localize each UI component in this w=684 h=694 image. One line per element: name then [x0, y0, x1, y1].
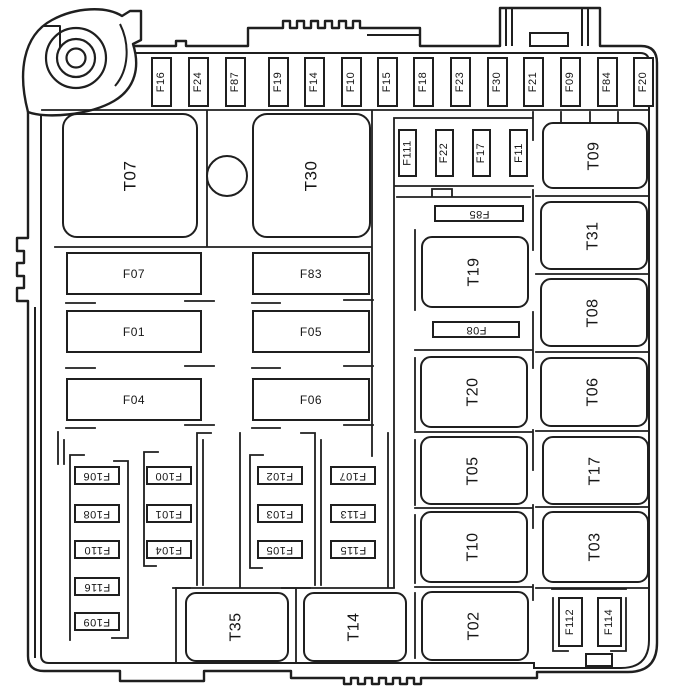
mounting-bracket [23, 9, 141, 115]
fuse-F113: F113 [330, 504, 376, 523]
fuse-F19: F19 [268, 57, 289, 107]
fuse-F83: F83 [252, 252, 370, 295]
fuse-F102: F102 [257, 466, 303, 485]
top-connector-latch [530, 33, 568, 46]
relay-label: T19 [466, 257, 484, 286]
fuse-F16: F16 [151, 57, 172, 107]
fuse-F20: F20 [633, 57, 654, 107]
fuse-F87: F87 [225, 57, 246, 107]
fuse-label: F112 [565, 609, 577, 635]
fuse-label: F10 [346, 72, 358, 92]
fuse-label: F111 [402, 140, 414, 165]
fuse-F108: F108 [74, 504, 120, 523]
fuse-label: F06 [300, 393, 322, 407]
fuse-F15: F15 [377, 57, 398, 107]
fuse-F07: F07 [66, 252, 202, 295]
fuse-label: F106 [83, 470, 110, 482]
fuse-F17: F17 [472, 129, 491, 177]
fuse-F103: F103 [257, 504, 303, 523]
relay-label: T08 [585, 298, 603, 327]
relay-label: T35 [228, 612, 246, 641]
fuse-label: F19 [273, 72, 285, 92]
relay-label: T14 [346, 612, 364, 641]
fuse-F21: F21 [523, 57, 544, 107]
relay-label: T09 [586, 141, 604, 170]
relay-T02: T02 [421, 591, 529, 661]
fuse-label: F21 [528, 72, 540, 92]
fuse-label: F100 [155, 470, 182, 482]
fuse-F06: F06 [252, 378, 370, 421]
fuse-label: F09 [565, 72, 577, 92]
relay-T08: T08 [540, 278, 648, 347]
relay-label: T30 [301, 160, 321, 191]
fuse-label: F85 [469, 208, 489, 220]
fuse-F114: F114 [597, 597, 622, 647]
relay-label: T17 [586, 456, 604, 485]
relay-T17: T17 [542, 436, 649, 505]
relay-T19: T19 [421, 236, 529, 308]
fuse-label: F110 [84, 544, 110, 556]
relay-label: T07 [120, 160, 140, 191]
fuse-F30: F30 [487, 57, 508, 107]
relay-T09: T09 [542, 122, 648, 189]
relay-T14: T14 [303, 592, 407, 662]
relay-label: T10 [465, 532, 483, 561]
relay-T30: T30 [252, 113, 371, 238]
relay-T31: T31 [540, 201, 648, 270]
fuse-label: F116 [84, 581, 110, 593]
fuse-F01: F01 [66, 310, 202, 353]
fuse-label: F15 [382, 72, 394, 92]
fuse-label: F20 [638, 72, 650, 92]
fuse-F101: F101 [146, 504, 192, 523]
relay-T10: T10 [420, 511, 528, 583]
fuse-F116: F116 [74, 577, 120, 596]
fuse-F85: F85 [434, 205, 524, 222]
fuse-F05: F05 [252, 310, 370, 353]
fuse-label: F05 [300, 325, 322, 339]
relay-T05: T05 [420, 436, 528, 505]
relay-T35: T35 [185, 592, 289, 662]
fuse-F09: F09 [560, 57, 581, 107]
fuse-F115: F115 [330, 540, 376, 559]
fuse-F14: F14 [304, 57, 325, 107]
fuse-label: F30 [492, 72, 504, 92]
fuse-F106: F106 [74, 466, 120, 485]
fuse-F23: F23 [450, 57, 471, 107]
relay-label: T20 [465, 377, 483, 406]
relay-label: T05 [465, 456, 483, 485]
fuse-label: F103 [266, 508, 293, 520]
fuse-label: F23 [455, 72, 467, 92]
fuse-label: F109 [83, 616, 110, 628]
fuse-label: F102 [266, 470, 293, 482]
relay-label: T06 [585, 377, 603, 406]
fuse-F105: F105 [257, 540, 303, 559]
relay-T07: T07 [62, 113, 198, 238]
fuse-F110: F110 [74, 540, 120, 559]
fuse-label: F107 [339, 470, 366, 482]
fuse-label: F115 [340, 544, 366, 556]
fuse-box-diagram: F16F24F87F19F14F10F15F18F23F30F21F09F84F… [0, 0, 684, 694]
fuse-F10: F10 [341, 57, 362, 107]
fuse-label: F24 [193, 72, 205, 92]
relay-T06: T06 [540, 357, 648, 427]
fuse-F112: F112 [558, 597, 583, 647]
fuse-label: F07 [123, 267, 145, 281]
relay-label: T02 [466, 611, 484, 640]
fuse-label: F18 [418, 72, 430, 92]
fuse-label: F08 [466, 324, 486, 336]
fuse-label: F101 [155, 508, 182, 520]
fuse-F24: F24 [188, 57, 209, 107]
fuse-label: F16 [156, 72, 168, 92]
fuse-label: F108 [83, 508, 110, 520]
relay-socket-hole [206, 155, 248, 197]
fuse-F109: F109 [74, 612, 120, 631]
fuse-label: F01 [123, 325, 145, 339]
fuse-label: F113 [340, 508, 366, 520]
fuse-label: F84 [602, 72, 614, 92]
bottom-latch [586, 654, 612, 666]
fuse-label: F105 [266, 544, 293, 556]
fuse-F18: F18 [413, 57, 434, 107]
fuse-F84: F84 [597, 57, 618, 107]
fuse-label: F22 [439, 143, 451, 163]
fuse-F107: F107 [330, 466, 376, 485]
fuse-label: F87 [230, 72, 242, 92]
fuse-F08: F08 [432, 321, 520, 338]
fuse-F111: F111 [398, 129, 417, 177]
fuse-label: F104 [155, 544, 182, 556]
fuse-F04: F04 [66, 378, 202, 421]
fuse-F22: F22 [435, 129, 454, 177]
fuse-label: F114 [604, 609, 616, 635]
fuse-label: F04 [123, 393, 145, 407]
relay-T03: T03 [542, 511, 649, 583]
fuse-label: F17 [476, 143, 488, 163]
relay-T20: T20 [420, 356, 528, 428]
relay-label: T31 [585, 221, 603, 250]
relay-label: T03 [586, 532, 604, 561]
fuse-label: F14 [309, 72, 321, 92]
fuse-label: F83 [300, 267, 322, 281]
fuse-F11: F11 [509, 129, 528, 177]
fuse-F104: F104 [146, 540, 192, 559]
fuse-label: F11 [513, 143, 525, 163]
fuse-F100: F100 [146, 466, 192, 485]
